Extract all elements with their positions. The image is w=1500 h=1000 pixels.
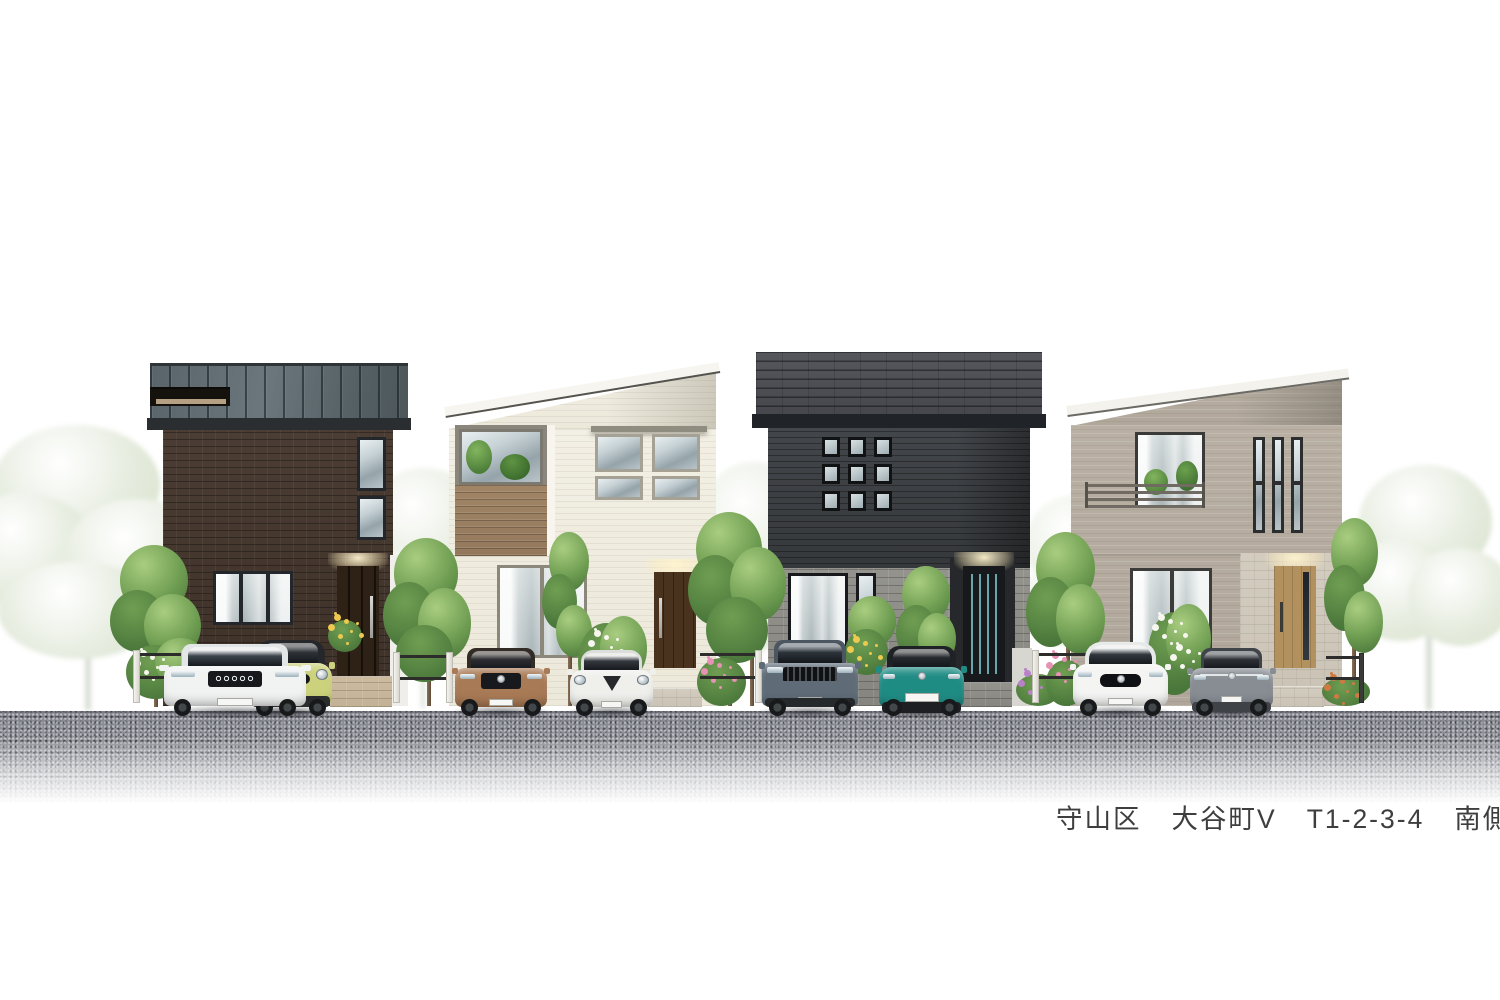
caption-text: 守山区大谷町VT1-2-3-4南側: [1056, 797, 1500, 836]
garden-fence: [700, 653, 762, 703]
windshield: [1089, 645, 1152, 666]
upper-window: [595, 434, 643, 472]
license-plate: [217, 698, 254, 706]
houseplant: [466, 440, 492, 474]
grid-window: [874, 464, 892, 484]
windshield: [778, 643, 841, 664]
side-mirror: [1270, 668, 1276, 674]
front-wheel: [1080, 699, 1097, 716]
side-mirror: [301, 665, 311, 671]
car-white-suv: [164, 644, 306, 714]
houseplant: [500, 454, 530, 480]
vertical-slit-window: [1253, 437, 1265, 533]
side-mirror: [544, 668, 550, 674]
side-mirror: [650, 669, 656, 675]
license-plate: [1108, 698, 1133, 706]
balcony-niche: [455, 425, 547, 556]
flower-shrub: [328, 612, 362, 652]
windshield: [584, 653, 639, 672]
balcony-window: [459, 429, 543, 485]
car-teal-hatch: [879, 646, 964, 714]
side-mirror: [329, 662, 335, 669]
headlight: [574, 675, 586, 685]
roof-fascia: [752, 414, 1046, 428]
white-flowers: [1158, 614, 1165, 621]
fence-post: [393, 652, 400, 703]
headlight: [171, 671, 195, 677]
white-flowers: [1176, 644, 1183, 651]
front-wheel: [279, 699, 296, 716]
yellow-flowers: [334, 614, 341, 621]
front-wheel: [174, 699, 191, 716]
grid-window: [848, 491, 866, 511]
grid-window: [848, 437, 866, 457]
headlight: [767, 667, 783, 673]
side-mirror: [961, 666, 967, 672]
window-awning: [591, 426, 707, 432]
fence-rail: [700, 653, 762, 656]
front-wheel: [576, 699, 593, 716]
window-mullion: [1256, 481, 1262, 485]
slot-sill: [156, 399, 226, 404]
side-mirror: [759, 662, 766, 669]
fence-rail: [700, 676, 762, 679]
white-roses: [594, 630, 601, 637]
fence-post: [133, 650, 140, 703]
caption-lot-numbers: T1-2-3-4: [1307, 804, 1425, 834]
vertical-slit-window: [1291, 437, 1303, 533]
street-elevation-rendering: 守山区大谷町VT1-2-3-4南側: [0, 0, 1500, 1000]
window-mullion: [1294, 481, 1300, 485]
side-mirror: [1070, 664, 1077, 670]
side-mirror: [452, 668, 458, 674]
fence-rail: [393, 677, 453, 680]
tile-roof: [756, 352, 1042, 416]
side-mirror: [855, 662, 862, 669]
window-mullion: [1275, 481, 1281, 485]
citroen-emblem: [918, 672, 926, 680]
mercedes-star-emblem: [1117, 675, 1125, 683]
caption-elevation-side: 南側: [1454, 804, 1500, 834]
windshield: [893, 649, 949, 669]
headlight: [275, 671, 299, 677]
balcony-railing: [1085, 482, 1205, 508]
alfa-triangle-grille: [603, 676, 621, 691]
entry-door: [963, 566, 1005, 682]
front-wheel: [885, 699, 902, 716]
front-wheel: [1196, 699, 1213, 716]
headlight: [316, 669, 327, 680]
garden-fence: [1326, 656, 1364, 703]
front-wheel: [941, 699, 958, 716]
window-mullion: [266, 574, 270, 622]
side-mirror: [1165, 664, 1172, 670]
roof-fascia: [147, 418, 411, 430]
fence-post: [1032, 650, 1039, 703]
door-glass-slits: [971, 574, 997, 674]
entry-door: [1274, 566, 1316, 668]
side-mirror: [159, 665, 169, 671]
upper-window: [652, 476, 700, 500]
grid-window: [848, 464, 866, 484]
fence-post: [1359, 653, 1364, 703]
grid-window: [874, 491, 892, 511]
jeep-slat-grille: [783, 667, 837, 680]
headlight: [837, 667, 853, 673]
fence-post: [446, 652, 453, 703]
windshield: [471, 651, 532, 670]
door-handle: [659, 598, 662, 638]
front-wheel: [524, 699, 541, 716]
foliage-blob: [328, 620, 362, 652]
parapet-slot-window: [150, 387, 230, 406]
grid-window: [874, 437, 892, 457]
siding-wall: [768, 428, 1030, 570]
headlight: [883, 674, 895, 679]
headlight: [1149, 671, 1163, 677]
car-slate-suv: [762, 640, 858, 714]
living-window: [213, 571, 293, 625]
fence-post: [755, 650, 762, 703]
side-mirror: [1187, 668, 1193, 674]
garden-fence: [393, 655, 453, 703]
door-handle: [370, 596, 373, 638]
vw-emblem: [1228, 672, 1236, 680]
car-bronze-suv: [455, 648, 547, 714]
purple-flowers: [1024, 670, 1031, 677]
front-wheel: [769, 699, 786, 716]
window-mullion: [239, 574, 243, 622]
upper-window: [357, 437, 386, 491]
side-mirror: [567, 669, 573, 675]
windshield: [1204, 651, 1259, 670]
headlight: [637, 675, 649, 685]
license-plate: [905, 693, 939, 702]
car-gray-crossover: [1190, 648, 1273, 714]
side-mirror: [876, 666, 882, 672]
windshield: [188, 647, 282, 667]
upper-window: [652, 434, 700, 472]
grid-window: [822, 491, 840, 511]
headlight: [1194, 675, 1206, 680]
square-window-grid: [822, 437, 892, 511]
upper-window: [357, 496, 386, 540]
headlight: [1078, 671, 1092, 677]
grid-window: [822, 437, 840, 457]
door-handle: [1280, 602, 1283, 632]
license-plate: [601, 701, 623, 708]
headlight: [1257, 675, 1269, 680]
headlight: [460, 674, 476, 679]
caption-town: 大谷町V: [1172, 804, 1277, 834]
ds-emblem: [497, 675, 505, 683]
grid-window: [822, 464, 840, 484]
foliage-blob: [1344, 591, 1384, 653]
upper-window: [595, 476, 643, 500]
door-glass-slit: [1303, 572, 1309, 660]
license-plate: [489, 699, 513, 706]
car-white-sedan: [1073, 642, 1168, 714]
vertical-slit-window: [1272, 437, 1284, 533]
headlight: [948, 674, 960, 679]
car-white-hatch: [570, 650, 653, 714]
fence-rail: [393, 655, 453, 658]
caption-district: 守山区: [1056, 804, 1142, 834]
audi-rings-emblem: [215, 675, 255, 682]
headlight: [527, 674, 543, 679]
